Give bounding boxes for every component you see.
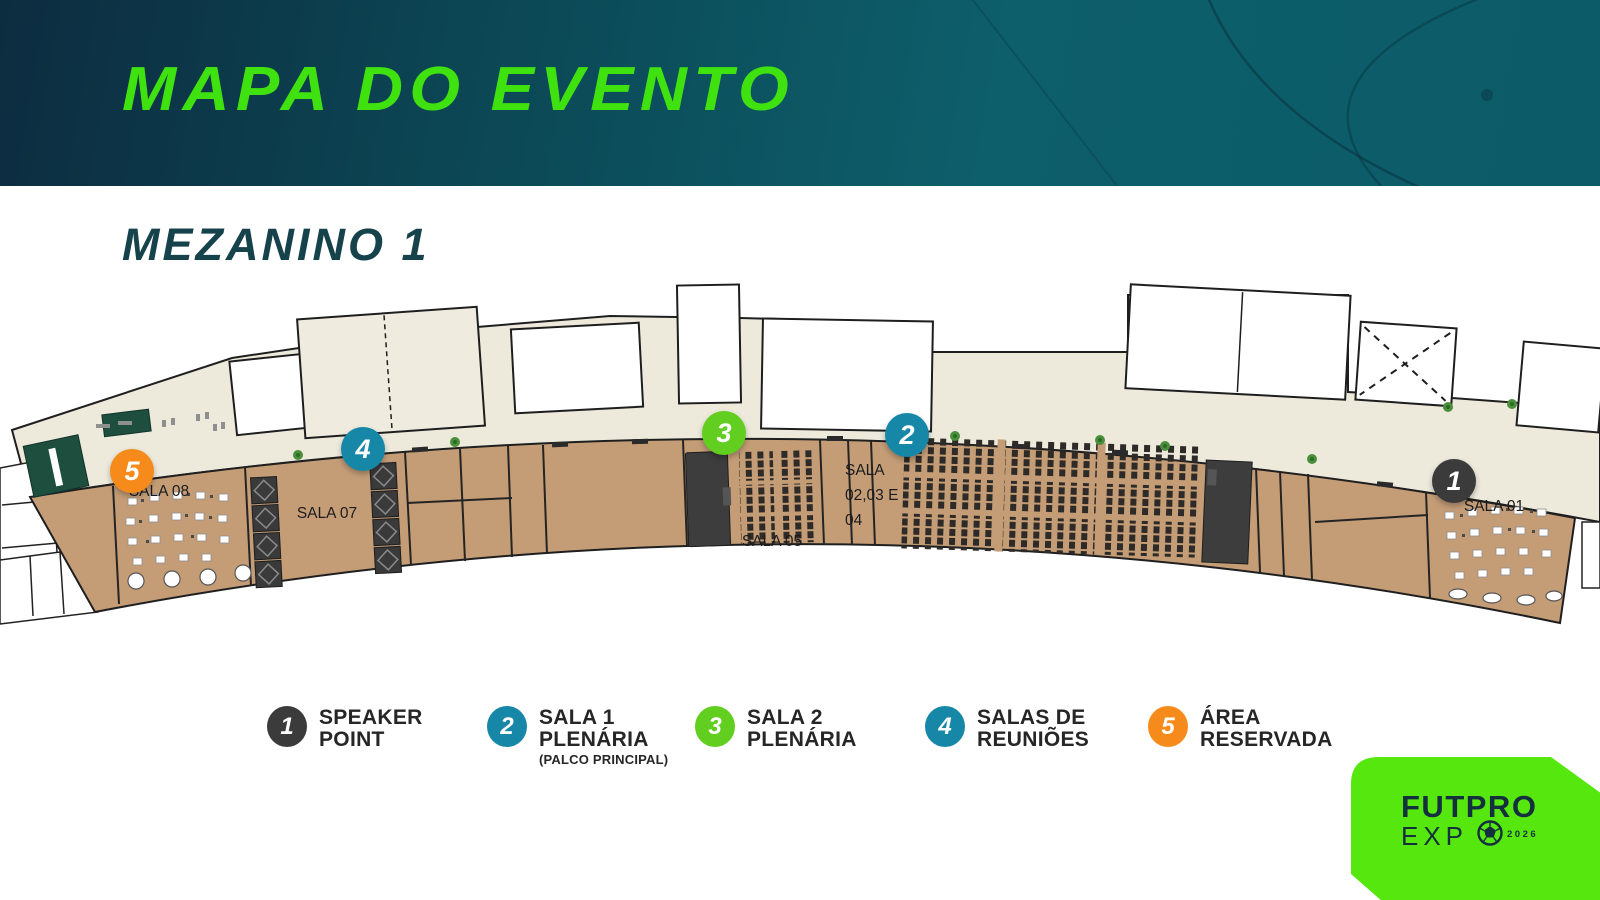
legend-number-3: 3 <box>708 713 721 741</box>
room-label-sala01: SALA 01 <box>1464 498 1524 516</box>
legend-item-sala2-plenaria: 3 SALA 2 PLENÁRIA <box>695 706 857 751</box>
legend-item-area-reservada: 5 ÁREA RESERVADA <box>1148 706 1333 751</box>
legend-number-1: 1 <box>280 713 293 741</box>
map-marker-3-number: 3 <box>716 418 731 449</box>
legend-item-salas-de-reunioes: 4 SALAS DE REUNIÕES <box>925 706 1089 751</box>
map-marker-3: 3 <box>702 411 746 455</box>
legend-label: SALA 2 <box>747 707 857 729</box>
legend-label: RESERVADA <box>1200 729 1333 751</box>
legend-circle-2: 2 <box>487 706 527 747</box>
map-marker-1: 1 <box>1432 459 1476 503</box>
logo-year: 2026 <box>1507 829 1538 840</box>
legend-label: REUNIÕES <box>977 729 1089 751</box>
room-label-sala020304: SALA 02,03 E 04 <box>845 458 898 533</box>
legend-number-2: 2 <box>500 713 513 741</box>
legend-item-sala1-plenaria: 2 SALA 1 PLENÁRIA (PALCO PRINCIPAL) <box>487 706 668 768</box>
legend-circle-1: 1 <box>267 706 307 747</box>
legend-item-speaker-point: 1 SPEAKER POINT <box>267 706 423 751</box>
legend-circle-5: 5 <box>1148 706 1188 747</box>
logo-shape <box>1351 757 1600 900</box>
legend-circle-3: 3 <box>695 706 735 747</box>
floor-plan: FUTPRO EXP 2026 <box>0 0 1600 900</box>
map-marker-5-number: 5 <box>124 456 139 487</box>
legend-label: PLENÁRIA <box>539 729 668 751</box>
legend-number-4: 4 <box>938 713 951 741</box>
legend-label: ÁREA <box>1200 707 1333 729</box>
room-label-sala020304-line2: 02,03 E <box>845 483 898 508</box>
map-marker-4-number: 4 <box>355 434 370 465</box>
event-map-slide: MAPA DO EVENTO MEZANINO 1 <box>0 0 1600 900</box>
map-marker-5: 5 <box>110 449 154 493</box>
legend-label: PLENÁRIA <box>747 729 857 751</box>
map-marker-2: 2 <box>885 413 929 457</box>
logo-brand-line2: EXP <box>1401 821 1468 851</box>
room-label-sala07: SALA 07 <box>297 505 357 523</box>
logo-brand-line1: FUTPRO <box>1401 789 1537 824</box>
legend-label: SALA 1 <box>539 707 668 729</box>
legend-label: POINT <box>319 729 423 751</box>
map-marker-2-number: 2 <box>899 420 914 451</box>
room-label-sala020304-line1: SALA <box>845 458 898 483</box>
legend-label: SPEAKER <box>319 707 423 729</box>
brand-logo: FUTPRO EXP 2026 <box>1351 757 1600 900</box>
map-marker-4: 4 <box>341 427 385 471</box>
legend-label: SALAS DE <box>977 707 1089 729</box>
room-label-sala020304-line3: 04 <box>845 508 898 533</box>
map-marker-1-number: 1 <box>1446 466 1461 497</box>
legend-note: (PALCO PRINCIPAL) <box>539 751 668 768</box>
room-label-sala05: SALA 05 <box>742 533 802 551</box>
legend-circle-4: 4 <box>925 706 965 747</box>
legend-number-5: 5 <box>1161 713 1174 741</box>
